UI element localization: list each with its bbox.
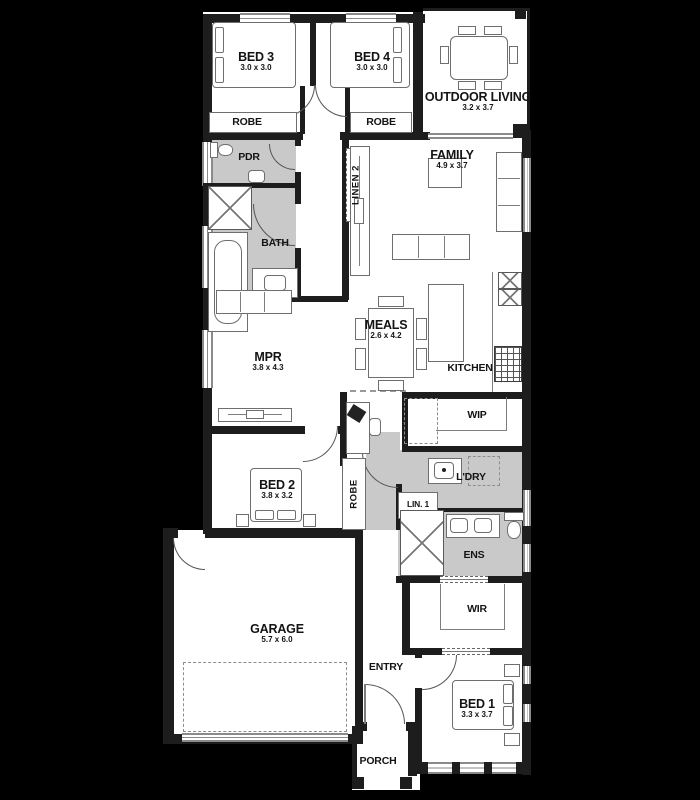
room-name: KITCHEN — [447, 363, 492, 375]
room-label-wip: WIP — [467, 410, 486, 422]
room-name: OUTDOOR LIVING — [425, 90, 531, 104]
room-label-bed4: BED 4 3.0 x 3.0 — [354, 50, 390, 73]
bedside-table-icon — [236, 514, 249, 527]
wall — [205, 528, 363, 538]
room-label-outdoor-living: OUTDOOR LIVING 3.2 x 3.7 — [425, 90, 531, 113]
wall — [415, 648, 422, 658]
room-name: PORCH — [360, 756, 397, 768]
room-name: BED 1 — [459, 697, 495, 711]
basin-icon — [450, 518, 468, 533]
room-label-bed2: BED 2 3.8 x 3.2 — [259, 478, 295, 501]
bedside-table-icon — [504, 664, 520, 677]
bedside-table-icon — [303, 514, 316, 527]
fridge-space-icon — [404, 398, 438, 444]
room-label-linen2: LINEN 2 — [351, 165, 362, 205]
sofa-cushion-line — [240, 292, 241, 312]
room-name: LINEN 2 — [351, 165, 362, 205]
wall — [203, 426, 305, 434]
room-name: WIP — [467, 410, 486, 422]
wardrobe-rail — [504, 584, 505, 630]
room-name: BATH — [261, 238, 289, 250]
sliding-door-icon — [428, 133, 513, 139]
room-dims: 3.2 x 3.7 — [425, 104, 531, 113]
chair-icon — [378, 296, 404, 307]
room-name: PDR — [238, 152, 260, 164]
room-label-wir: WIR — [467, 604, 487, 616]
room-dims: 3.0 x 3.0 — [238, 64, 274, 73]
toilet-icon — [210, 142, 218, 158]
wall — [295, 136, 301, 146]
chair-icon — [416, 318, 427, 340]
door-leaf — [364, 684, 366, 724]
window — [202, 330, 213, 388]
room-label-bed3: BED 3 3.0 x 3.0 — [238, 50, 274, 73]
room-name: ENS — [464, 550, 485, 562]
room-label-garage: GARAGE 5.7 x 6.0 — [250, 622, 304, 645]
wall — [295, 172, 301, 204]
tv-icon — [246, 410, 264, 419]
sofa-cushion-line — [498, 178, 520, 179]
pillow-icon — [393, 57, 402, 83]
window — [523, 158, 531, 232]
sofa-cushion-line — [418, 236, 419, 258]
trough-drain — [442, 468, 446, 472]
porch-post — [400, 777, 412, 789]
room-name: BED 4 — [354, 50, 390, 64]
wall — [402, 446, 530, 452]
basin-icon — [264, 275, 286, 291]
sofa-cushion-line — [498, 205, 520, 206]
room-label-lin1: LIN. 1 — [407, 500, 429, 510]
room-name: GARAGE — [250, 622, 304, 636]
pillow-icon — [393, 27, 402, 53]
wall — [310, 14, 316, 86]
pillow-icon — [277, 510, 296, 520]
wall — [203, 132, 303, 140]
corner-marker — [515, 10, 526, 19]
room-label-meals: MEALS 2.6 x 4.2 — [365, 318, 408, 341]
wardrobe-rail — [440, 584, 441, 630]
chair-icon — [484, 26, 502, 35]
sofa-icon — [496, 152, 522, 232]
window — [523, 704, 531, 722]
porch-post — [352, 777, 364, 789]
pillow-icon — [503, 684, 513, 704]
room-name: MPR — [252, 350, 283, 364]
room-label-robe-bed3: ROBE — [232, 117, 262, 129]
pantry-bench-line — [506, 397, 507, 431]
room-dims: 3.8 x 3.2 — [259, 492, 295, 501]
kitchen-island-icon — [428, 284, 464, 362]
room-label-robe-bed2: ROBE — [349, 479, 360, 508]
chair-icon — [458, 26, 476, 35]
window — [492, 762, 516, 774]
basin-icon — [248, 170, 265, 183]
cooktop-icon — [494, 346, 522, 382]
room-name: MEALS — [365, 318, 408, 332]
chair-icon — [416, 348, 427, 370]
pillow-icon — [503, 706, 513, 726]
wall — [355, 528, 363, 738]
chair-icon — [378, 380, 404, 391]
sofa-cushion-line — [264, 292, 265, 312]
room-name: BED 2 — [259, 478, 295, 492]
desk-chair-icon — [369, 418, 381, 436]
room-dims: 3.0 x 3.0 — [354, 64, 390, 73]
room-label-robe-bed4: ROBE — [366, 117, 396, 129]
basin-icon — [474, 518, 492, 533]
room-name: FAMILY — [430, 148, 473, 162]
room-label-porch: PORCH — [360, 756, 397, 768]
room-name: WIR — [467, 604, 487, 616]
window — [523, 666, 531, 684]
room-name: LIN. 1 — [407, 500, 429, 510]
room-name: ENTRY — [369, 662, 403, 674]
window — [428, 762, 452, 774]
pillow-icon — [215, 57, 224, 83]
wall — [163, 528, 174, 744]
chair-icon — [355, 348, 366, 370]
wardrobe-rail — [440, 629, 505, 630]
room-label-bed1: BED 1 3.3 x 3.7 — [459, 697, 495, 720]
room-label-family: FAMILY 4.9 x 3.7 — [430, 148, 473, 171]
sofa-icon — [216, 290, 292, 314]
sofa-cushion-line — [444, 236, 445, 258]
room-label-bath: BATH — [261, 238, 289, 250]
sliding-door-icon — [442, 648, 490, 655]
wall — [340, 132, 430, 140]
room-dims: 3.8 x 4.3 — [252, 364, 283, 373]
chair-icon — [440, 46, 449, 64]
chair-icon — [458, 81, 476, 90]
room-name: L'DRY — [456, 472, 486, 484]
room-dims: 4.9 x 3.7 — [430, 162, 473, 171]
shower-icon — [400, 510, 444, 576]
room-label-ens: ENS — [464, 550, 485, 562]
room-dims: 3.3 x 3.7 — [459, 711, 495, 720]
room-label-pdr: PDR — [238, 152, 260, 164]
sink-icon — [498, 289, 522, 306]
toilet-icon — [507, 521, 521, 539]
bedside-table-icon — [504, 733, 520, 746]
wall — [413, 12, 423, 132]
wall — [423, 8, 530, 11]
window — [460, 762, 484, 774]
room-label-ldry: L'DRY — [456, 472, 486, 484]
room-name: ROBE — [366, 117, 396, 129]
garage-door — [182, 733, 348, 742]
floor-plan: BED 3 3.0 x 3.0 BED 4 3.0 x 3.0 OUTDOOR … — [0, 0, 700, 800]
sofa-icon — [392, 234, 470, 260]
room-dims: 5.7 x 6.0 — [250, 636, 304, 645]
sink-icon — [498, 272, 522, 289]
sliding-door-icon — [440, 576, 488, 583]
wall — [402, 576, 410, 655]
room-label-kitchen: KITCHEN — [447, 363, 492, 375]
room-label-entry: ENTRY — [369, 662, 403, 674]
car-space — [183, 662, 347, 732]
window — [523, 490, 531, 526]
outdoor-table-icon — [450, 36, 508, 80]
chair-icon — [509, 46, 518, 64]
chair-icon — [484, 81, 502, 90]
window — [523, 544, 531, 572]
room-name: ROBE — [349, 479, 360, 508]
room-name: ROBE — [232, 117, 262, 129]
pillow-icon — [215, 27, 224, 53]
room-label-mpr: MPR 3.8 x 4.3 — [252, 350, 283, 373]
toilet-icon — [218, 144, 233, 156]
room-dims: 2.6 x 4.2 — [365, 332, 408, 341]
shower-icon — [208, 186, 252, 230]
toilet-icon — [504, 512, 524, 521]
room-name: BED 3 — [238, 50, 274, 64]
pantry-bench-line — [436, 430, 506, 431]
pillow-icon — [255, 510, 274, 520]
